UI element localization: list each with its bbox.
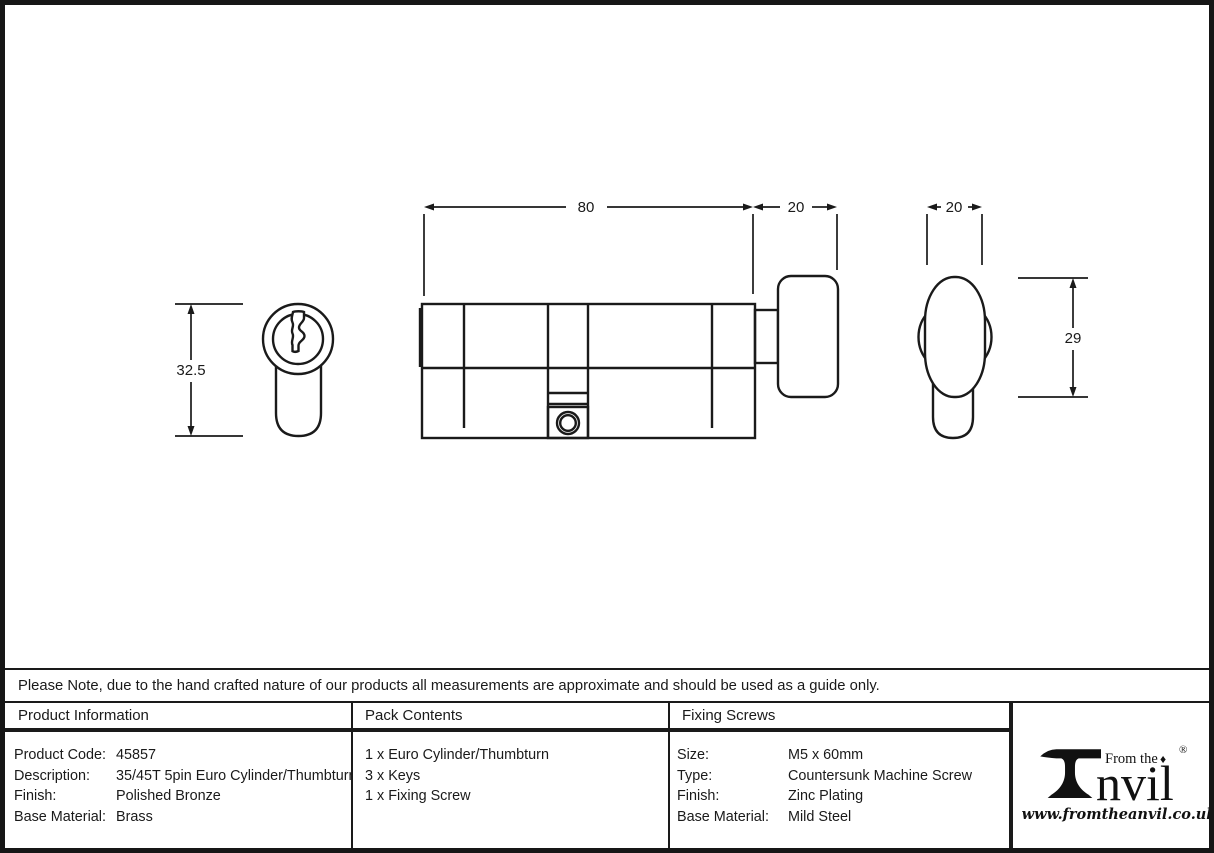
dim-thumbturn-length: 20 bbox=[753, 199, 837, 270]
table-row: Type:Countersunk Machine Screw bbox=[670, 766, 1009, 787]
pack-contents-column: Pack Contents 1 x Euro Cylinder/Thumbtur… bbox=[351, 703, 668, 848]
product-information-header: Product Information bbox=[5, 703, 351, 732]
cylinder-face-view bbox=[263, 304, 333, 436]
row-value: Polished Bronze bbox=[116, 788, 221, 804]
cylinder-side-view bbox=[420, 276, 838, 438]
row-label: Size: bbox=[677, 745, 788, 766]
table-row: Finish:Polished Bronze bbox=[5, 786, 351, 807]
dim-thumbturn-width: 20 bbox=[927, 199, 982, 265]
row-value: M5 x 60mm bbox=[788, 747, 863, 763]
table-row: Base Material:Mild Steel bbox=[670, 807, 1009, 828]
fixing-screws-header: Fixing Screws bbox=[670, 703, 1009, 732]
technical-drawing: 80 20 20 32.5 bbox=[5, 5, 1209, 665]
thumbturn-knob-side bbox=[778, 276, 838, 397]
from-the-anvil-logo: From the ♦ ® nvil www.fromtheanvil.co.uk bbox=[1019, 733, 1209, 833]
row-label: Product Code: bbox=[14, 745, 116, 766]
brand-logo-cell: From the ♦ ® nvil www.fromtheanvil.co.uk bbox=[1009, 703, 1209, 848]
spec-sheet-page: 80 20 20 32.5 bbox=[0, 0, 1214, 853]
dim-label-20-side: 20 bbox=[788, 199, 805, 216]
table-row: Product Code:45857 bbox=[5, 745, 351, 766]
dim-face-height: 32.5 bbox=[175, 304, 243, 436]
row-label: Base Material: bbox=[677, 807, 788, 828]
row-label: Base Material: bbox=[14, 807, 116, 828]
anvil-icon bbox=[1040, 749, 1101, 798]
logo-website: www.fromtheanvil.co.uk bbox=[1022, 806, 1209, 823]
thumbturn-end-view bbox=[919, 277, 992, 438]
list-item: 1 x Euro Cylinder/Thumbturn bbox=[365, 747, 549, 763]
dim-label-20-end: 20 bbox=[946, 199, 963, 216]
dim-label-80: 80 bbox=[578, 199, 595, 216]
thumbturn-neck bbox=[755, 310, 778, 363]
table-row: Finish:Zinc Plating bbox=[670, 786, 1009, 807]
row-value: 45857 bbox=[116, 747, 156, 763]
product-information-column: Product Information Product Code:45857 D… bbox=[5, 703, 351, 848]
row-value: Brass bbox=[116, 809, 153, 825]
list-item: 3 x Keys bbox=[365, 768, 420, 784]
table-row: Base Material:Brass bbox=[5, 807, 351, 828]
disclaimer-text: Please Note, due to the hand crafted nat… bbox=[18, 678, 880, 694]
row-value: Zinc Plating bbox=[788, 788, 863, 804]
row-label: Finish: bbox=[677, 786, 788, 807]
disclaimer-note: Please Note, due to the hand crafted nat… bbox=[5, 668, 1209, 703]
row-value: 35/45T 5pin Euro Cylinder/Thumbturn bbox=[116, 768, 351, 784]
row-label: Finish: bbox=[14, 786, 116, 807]
dim-body-length: 80 bbox=[424, 199, 753, 296]
row-label: Description: bbox=[14, 766, 116, 787]
row-value: Countersunk Machine Screw bbox=[788, 768, 972, 784]
dim-label-29: 29 bbox=[1065, 330, 1082, 347]
pack-contents-header: Pack Contents bbox=[353, 703, 668, 732]
row-label: Type: bbox=[677, 766, 788, 787]
thumbturn-knob-end bbox=[925, 277, 985, 397]
fixing-screws-column: Fixing Screws Size:M5 x 60mm Type:Counte… bbox=[668, 703, 1009, 848]
dim-label-32-5: 32.5 bbox=[176, 362, 205, 379]
row-value: Mild Steel bbox=[788, 809, 851, 825]
registered-mark: ® bbox=[1179, 744, 1187, 756]
list-item: 1 x Fixing Screw bbox=[365, 788, 471, 804]
table-row: Description:35/45T 5pin Euro Cylinder/Th… bbox=[5, 766, 351, 787]
table-row: Size:M5 x 60mm bbox=[670, 745, 1009, 766]
logo-brand-text: nvil bbox=[1096, 755, 1174, 811]
dim-knob-height: 29 bbox=[1018, 278, 1088, 397]
